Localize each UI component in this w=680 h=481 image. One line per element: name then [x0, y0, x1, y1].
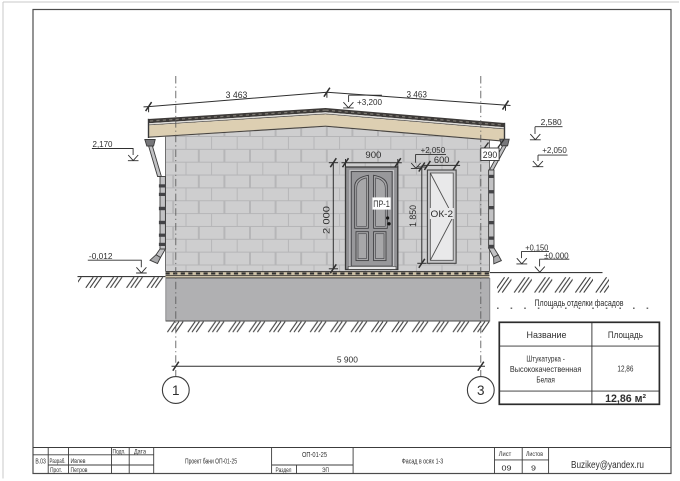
svg-text:900: 900	[365, 150, 381, 161]
svg-text:1 850: 1 850	[408, 205, 419, 227]
svg-text:290: 290	[483, 150, 498, 161]
svg-text:Фасад в осях 1-3: Фасад в осях 1-3	[402, 456, 444, 465]
svg-text:Высококачественная: Высококачественная	[510, 364, 582, 374]
svg-text:2,580: 2,580	[541, 118, 563, 127]
svg-text:2,170: 2,170	[93, 140, 114, 149]
svg-text:+2,050: +2,050	[421, 146, 446, 155]
svg-text:09: 09	[502, 465, 512, 472]
svg-text:Buzikey@yandex.ru: Buzikey@yandex.ru	[571, 459, 644, 471]
svg-text:-0,012: -0,012	[89, 252, 113, 261]
svg-text:1: 1	[172, 383, 180, 398]
svg-text:ОК-2: ОК-2	[431, 209, 454, 220]
svg-text:Разраб.: Разраб.	[50, 457, 66, 465]
svg-text:Белая: Белая	[536, 374, 555, 384]
svg-text:Прот.: Прот.	[50, 467, 62, 474]
svg-text:2 000: 2 000	[322, 206, 333, 234]
svg-text:Петров: Петров	[71, 467, 89, 474]
svg-text:3 463: 3 463	[226, 90, 248, 100]
svg-text:12,86 м²: 12,86 м²	[605, 393, 646, 405]
svg-text:В.03: В.03	[35, 458, 46, 465]
svg-text:12,86: 12,86	[617, 363, 633, 373]
svg-text:ЭП: ЭП	[322, 467, 329, 474]
svg-text:Лист: Лист	[499, 451, 512, 458]
svg-text:Название: Название	[527, 330, 567, 340]
svg-text:5 900: 5 900	[337, 355, 358, 365]
svg-text:ОП-01-25: ОП-01-25	[302, 450, 327, 459]
svg-text:Дата: Дата	[134, 449, 146, 456]
svg-text:±0,000: ±0,000	[544, 252, 569, 261]
svg-text:9: 9	[531, 465, 536, 472]
svg-text:Площадь: Площадь	[608, 330, 643, 340]
svg-text:+2,050: +2,050	[542, 146, 567, 155]
svg-text:+3,200: +3,200	[357, 98, 383, 107]
svg-text:Листов: Листов	[526, 451, 544, 458]
svg-text:Раздел: Раздел	[276, 467, 292, 474]
svg-text:Площадь отделки фасадов: Площадь отделки фасадов	[535, 298, 624, 308]
svg-text:Ивлев: Ивлев	[71, 458, 87, 465]
svg-text:600: 600	[434, 155, 450, 165]
svg-text:ПР-1: ПР-1	[373, 199, 390, 210]
svg-text:Штукатурка -: Штукатурка -	[526, 353, 565, 363]
svg-text:Подп.: Подп.	[113, 449, 126, 456]
svg-text:3 463: 3 463	[406, 89, 427, 99]
svg-text:Проект бани ОП-01-25: Проект бани ОП-01-25	[185, 456, 237, 465]
svg-text:3: 3	[477, 383, 485, 398]
